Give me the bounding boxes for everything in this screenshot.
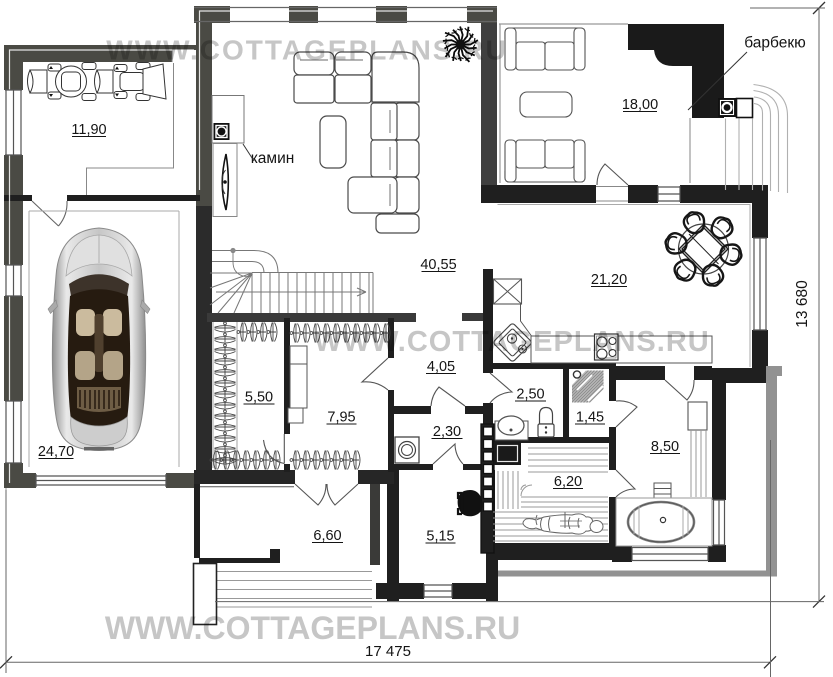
svg-text:11,90: 11,90	[71, 122, 106, 138]
svg-text:камин: камин	[251, 150, 295, 167]
svg-text:13 680: 13 680	[794, 280, 811, 328]
svg-text:2,30: 2,30	[433, 424, 461, 440]
svg-text:WWW.COTTAGEPLANS.RU: WWW.COTTAGEPLANS.RU	[105, 610, 520, 646]
svg-text:4,05: 4,05	[427, 359, 455, 375]
svg-text:1,45: 1,45	[576, 410, 604, 426]
svg-text:2,50: 2,50	[516, 387, 544, 403]
svg-text:21,20: 21,20	[591, 272, 627, 288]
svg-text:6,20: 6,20	[554, 474, 582, 490]
svg-text:барбекю: барбекю	[744, 35, 806, 52]
svg-text:6,60: 6,60	[313, 528, 341, 544]
svg-text:40,55: 40,55	[420, 257, 456, 273]
svg-text:5,50: 5,50	[245, 390, 273, 406]
svg-text:18,00: 18,00	[622, 97, 658, 113]
svg-text:7,95: 7,95	[327, 410, 355, 426]
svg-text:5,15: 5,15	[426, 529, 454, 545]
svg-text:WWW.COTTAGEPLANS.RU: WWW.COTTAGEPLANS.RU	[314, 326, 709, 358]
svg-text:24,70: 24,70	[38, 444, 74, 460]
svg-text:WWW.COTTAGEPLANS.RU: WWW.COTTAGEPLANS.RU	[106, 35, 507, 66]
svg-text:8,50: 8,50	[651, 439, 679, 455]
